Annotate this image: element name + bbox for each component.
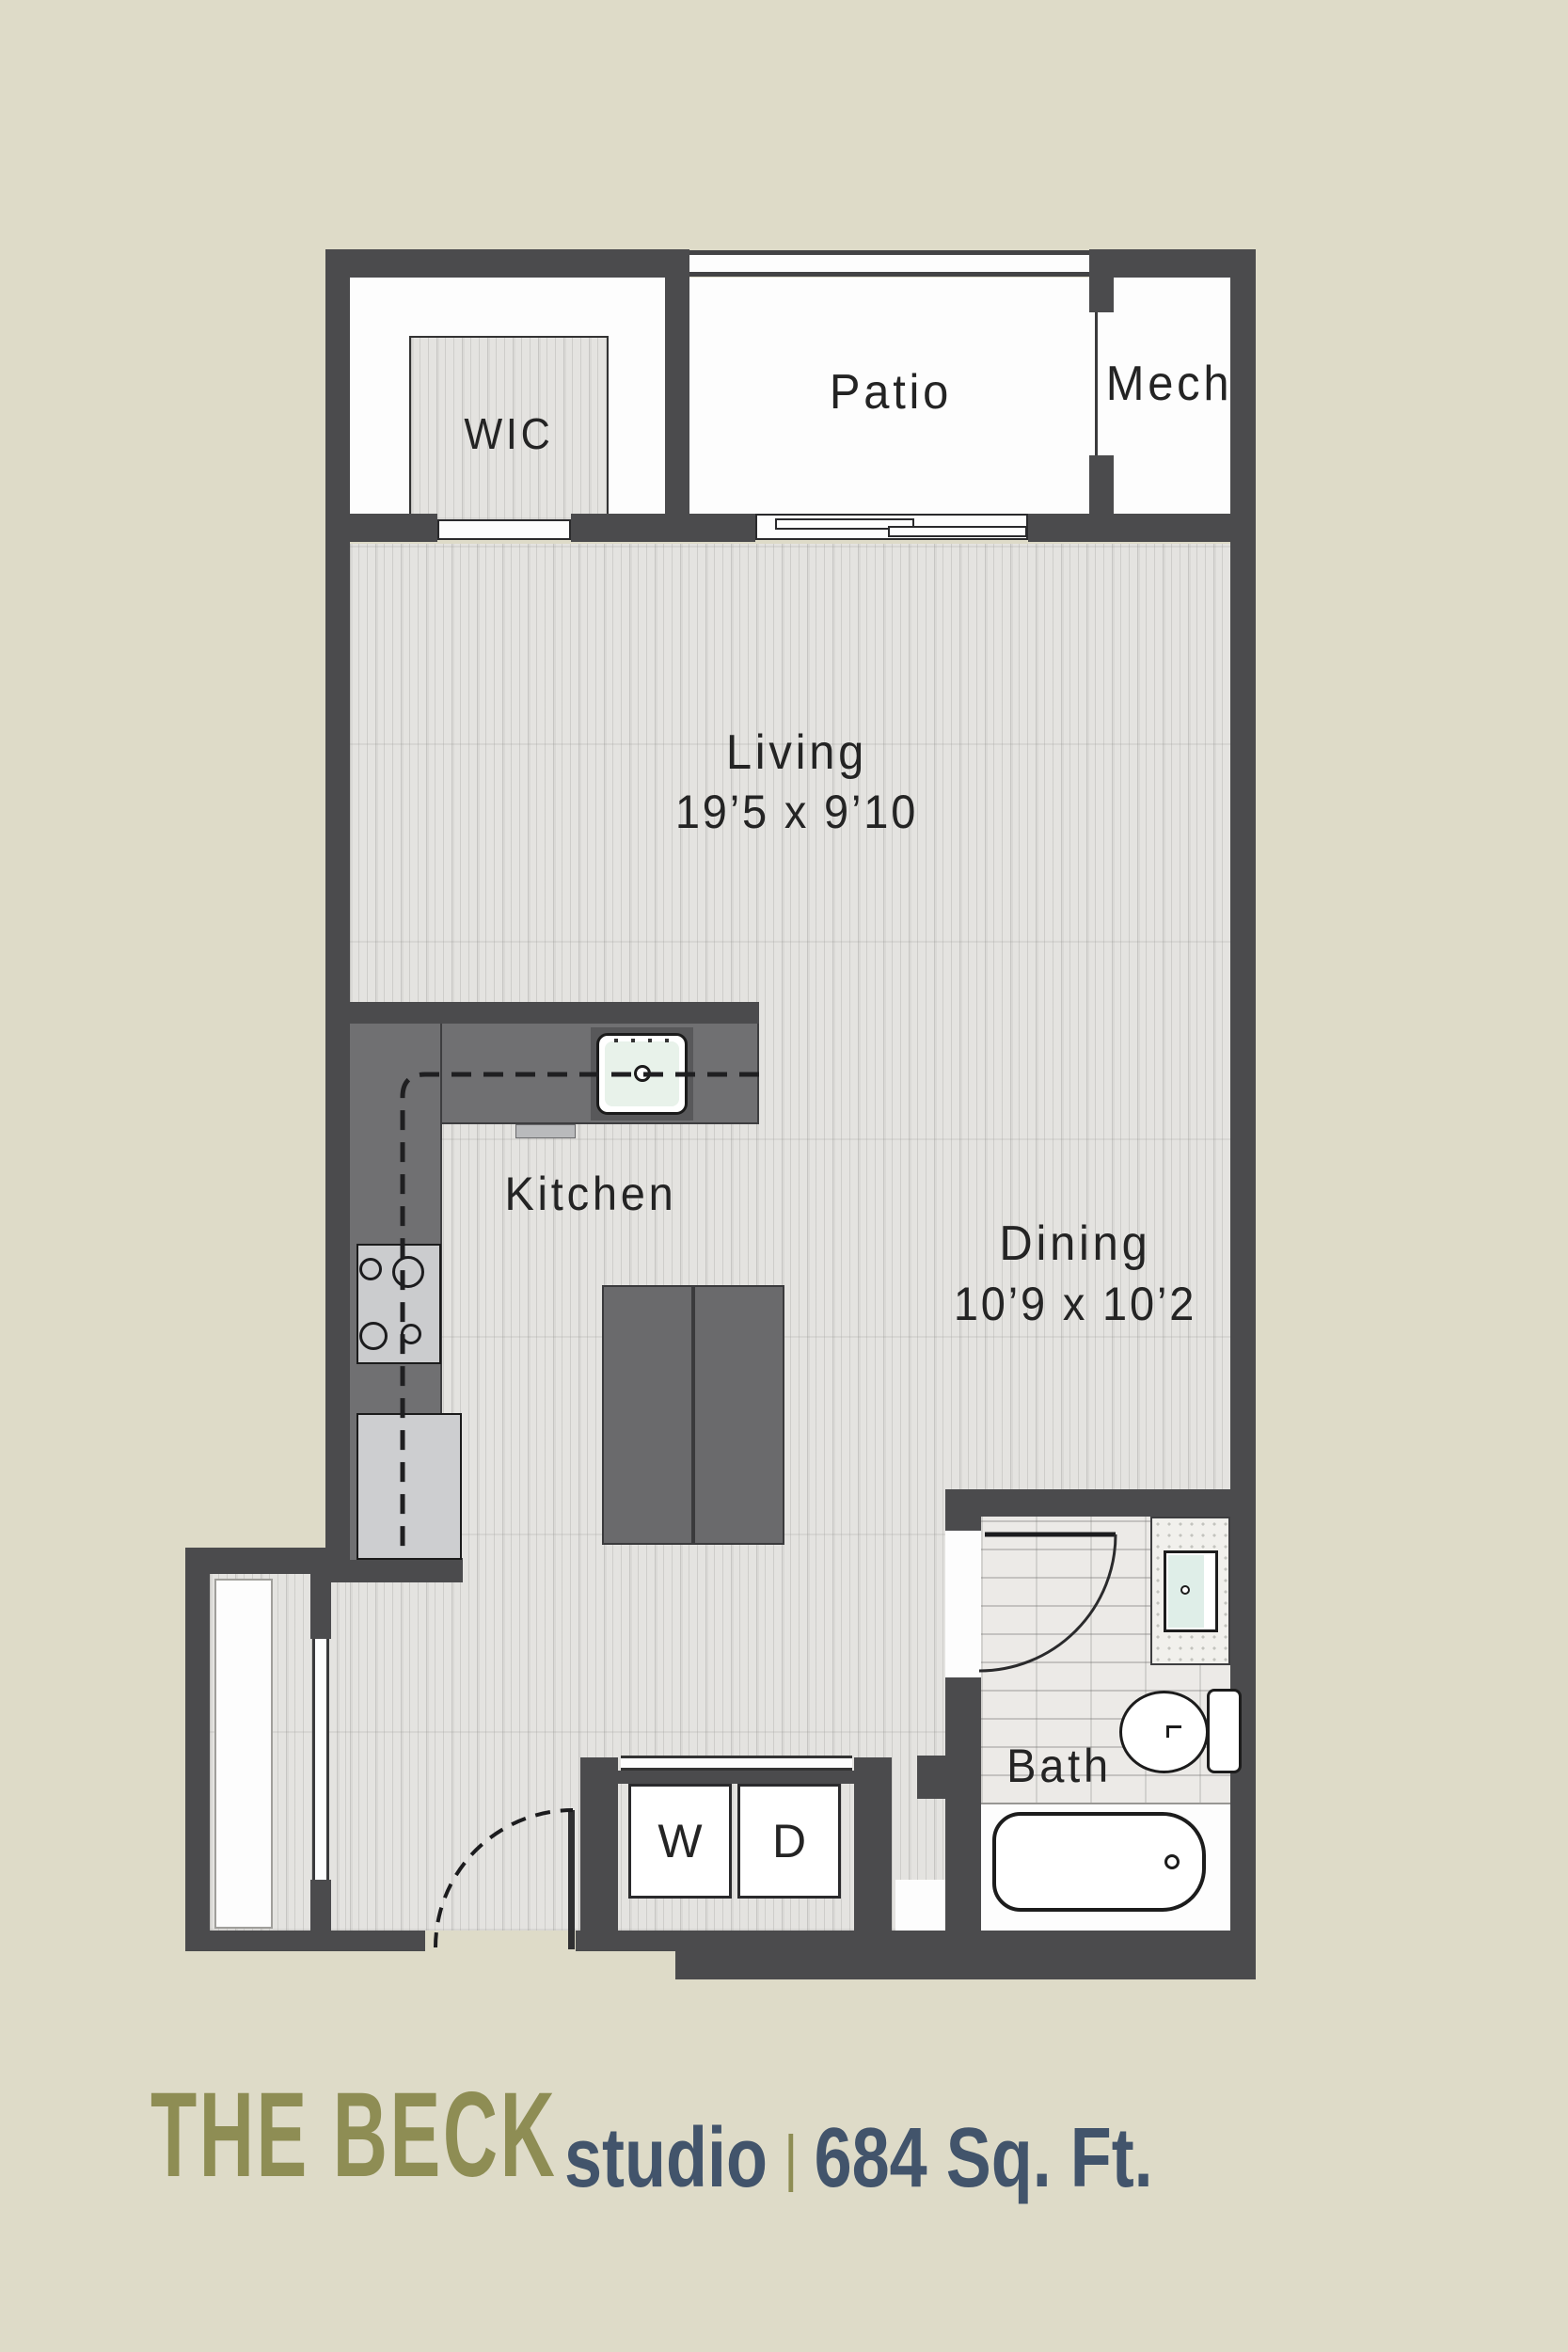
patio-edge-lines [689, 250, 1094, 277]
wall-band-under-patio-left [571, 514, 755, 542]
room-dims-dining: 10’9 x 10’2 [954, 1277, 1196, 1331]
bath-top-wall [945, 1489, 1256, 1517]
room-label-wic: WIC [464, 408, 553, 459]
wall-wic-patio-divider [665, 249, 689, 542]
entry-door-leaf [568, 1810, 575, 1949]
toilet-seat-mark [1166, 1725, 1181, 1738]
washer-letter: W [657, 1814, 702, 1868]
wall-top-left [325, 249, 689, 278]
entry-closet-bypass-doors [312, 1639, 329, 1880]
mech-door-leaf [1095, 312, 1098, 455]
dryer-letter: D [772, 1814, 806, 1868]
unit-type-text: studio [564, 2111, 768, 2205]
wall-bottom-entry [185, 1931, 425, 1951]
bathtub-drain [1164, 1854, 1180, 1869]
sink-dot-4 [665, 1039, 669, 1042]
subtitle-separator-bar [788, 2134, 793, 2192]
room-dims-living: 19’5 x 9’10 [675, 785, 918, 839]
wd-closet-right-wall [854, 1757, 892, 1931]
stove-burner-1 [359, 1258, 382, 1280]
sink-dot-1 [614, 1039, 618, 1042]
floorplan-page: W D WIC Patio Mech Living 19’5 x 9’10 Ki… [0, 0, 1568, 2352]
sink-dot-2 [631, 1039, 635, 1042]
linen-nook-floor [895, 1880, 945, 1931]
wall-bottom-right [675, 1931, 1256, 1979]
entry-closet-shelf [214, 1579, 273, 1929]
wall-band-under-wic [325, 514, 437, 542]
bath-door-opening [945, 1531, 981, 1677]
room-label-living: Living [726, 724, 867, 781]
room-label-bath: Bath [1006, 1739, 1112, 1793]
stove-burner-3 [359, 1322, 388, 1350]
bath-floor-divider-line [981, 1803, 1230, 1804]
area-text: 684 Sq. Ft. [815, 2111, 1153, 2205]
room-label-mech: Mech [1106, 356, 1233, 412]
wd-closet-top-wall [580, 1771, 892, 1784]
kitchen-counter-end-wall [327, 1558, 463, 1582]
wall-left [325, 249, 350, 1581]
stove-burner-4 [401, 1324, 421, 1344]
room-label-patio: Patio [830, 364, 952, 421]
dishwasher-handle [515, 1124, 576, 1138]
kitchen-island-left [602, 1285, 693, 1545]
wall-bottom-mid [576, 1931, 675, 1951]
room-label-kitchen: Kitchen [504, 1167, 676, 1221]
entry-closet-stub-top [310, 1574, 331, 1639]
room-label-dining: Dining [999, 1216, 1150, 1272]
kitchen-soffit-wall [350, 1002, 759, 1024]
bath-sink-drain [1180, 1585, 1190, 1595]
wic-door-panel [437, 519, 571, 540]
refrigerator [356, 1413, 462, 1560]
stove-burner-2 [392, 1256, 424, 1288]
washer: W [628, 1784, 732, 1899]
patio-slider-panel-2 [888, 526, 1027, 537]
wd-closet-door-track [621, 1756, 852, 1771]
wall-band-under-mech [1028, 514, 1256, 542]
toilet-tank [1207, 1689, 1242, 1773]
kitchen-island-right [693, 1285, 784, 1545]
entry-left-wall [185, 1548, 210, 1951]
toilet-bowl [1119, 1691, 1209, 1773]
kitchen-faucet-icon [634, 1065, 651, 1082]
entry-closet-stub-bottom [310, 1880, 331, 1931]
plan-subtitle: studio684 Sq. Ft. [564, 2110, 1153, 2207]
plan-name-title: THE BECK [150, 2066, 557, 2204]
sink-dot-3 [648, 1039, 652, 1042]
dryer: D [737, 1784, 841, 1899]
